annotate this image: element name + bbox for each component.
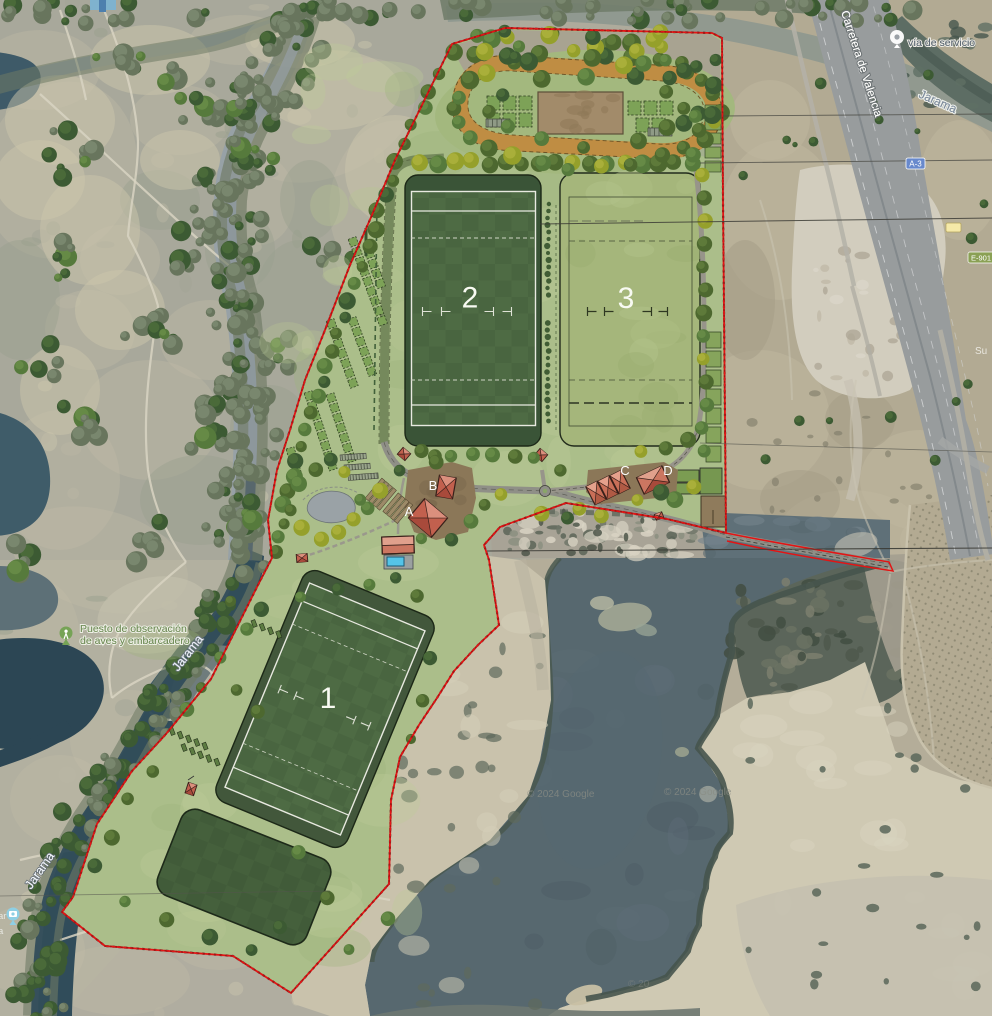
svg-text:A: A (405, 504, 414, 519)
svg-text:D: D (663, 463, 672, 478)
svg-text:B: B (429, 478, 438, 493)
svg-text:E-901: E-901 (971, 254, 991, 263)
svg-text:© 2024 Google: © 2024 Google (527, 789, 595, 800)
svg-text:© 20: © 20 (628, 979, 650, 990)
svg-text:C: C (620, 463, 629, 478)
svg-text:Puesto de observación: Puesto de observación (80, 623, 187, 635)
svg-text:Su: Su (975, 346, 987, 357)
svg-text:ar: ar (0, 911, 6, 922)
svg-text:A-3: A-3 (909, 160, 922, 169)
svg-text:de aves y embarcadero: de aves y embarcadero (80, 635, 190, 647)
svg-text:1: 1 (320, 682, 337, 715)
svg-text:© 2024 Google: © 2024 Google (664, 787, 732, 798)
svg-text:vía de servicio: vía de servicio (908, 37, 975, 49)
svg-text:3: 3 (618, 282, 635, 315)
svg-text:2: 2 (462, 282, 479, 315)
